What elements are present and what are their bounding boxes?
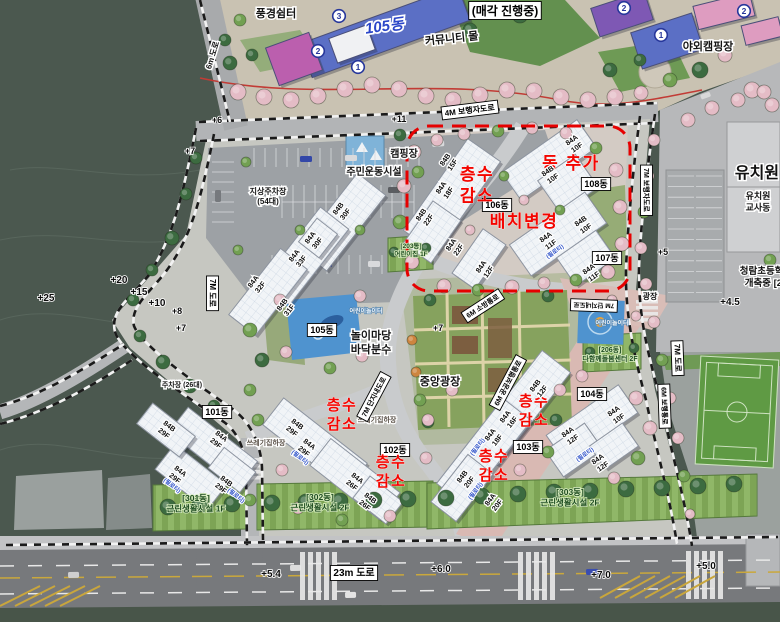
elev-8: +8: [172, 306, 182, 316]
circled-1b: 1: [655, 29, 668, 42]
elev-5: +5: [658, 247, 668, 257]
dong-105-label: 105동: [307, 324, 336, 337]
elev-10: +10: [149, 298, 166, 309]
svg-text:101동: 101동: [205, 407, 228, 417]
svg-text:쓰레기집하장: 쓰레기집하장: [247, 438, 286, 447]
svg-text:청람초등학교개축중 [25: 청람초등학교개축중 [25: [740, 265, 780, 289]
svg-text:+8: +8: [172, 306, 182, 316]
svg-text:야외캠핑장: 야외캠핑장: [683, 39, 734, 53]
svg-text:층수감소: 층수감소: [376, 454, 407, 490]
dong-101-label: 101동: [202, 406, 231, 419]
road-7m-ped-right-label: 7M 보행자도로: [641, 165, 653, 215]
svg-text:7M 도로: 7M 도로: [673, 344, 683, 373]
svg-text:23m 도로: 23m 도로: [333, 567, 374, 579]
svg-text:2: 2: [742, 6, 747, 16]
svg-text:어린이놀이터: 어린이놀이터: [349, 307, 382, 315]
svg-text:주민운동시설: 주민운동시설: [346, 165, 401, 178]
elev-15: +15: [131, 287, 148, 298]
svg-text:+15: +15: [131, 287, 148, 298]
elev-4p5: +4.5: [720, 297, 740, 308]
camping-label: 캠핑장: [390, 147, 418, 160]
note-floor-decrease-4: 층수감소: [519, 393, 550, 429]
svg-text:105동: 105동: [310, 325, 333, 335]
svg-text:104동: 104동: [580, 389, 603, 399]
svg-text:광장: 광장: [643, 291, 658, 301]
circled-2a: 2: [312, 45, 325, 58]
dong-103-label: 103동: [513, 441, 542, 454]
school-label: 청람초등학교개축중 [25: [740, 265, 780, 289]
svg-text:+4.5: +4.5: [720, 297, 740, 308]
kindergarten-label: 유치원: [735, 164, 779, 182]
road-6m-walk-label: 6M 보행통로: [658, 384, 672, 428]
svg-text:어린이놀이터: 어린이놀이터: [595, 319, 628, 327]
svg-text:+11: +11: [392, 114, 407, 124]
svg-text:103동: 103동: [516, 442, 539, 452]
kids-playground-label-1: 어린이놀이터: [349, 307, 382, 315]
road-7m-inner-label-2: 7M 단지내도로: [570, 299, 617, 313]
svg-text:층수감소: 층수감소: [327, 397, 358, 433]
punggyeong-shelter-label: 풍경쉼터: [256, 6, 296, 20]
svg-text:108동: 108동: [584, 179, 607, 189]
waste-station-label-2: 쓰레기집하장: [247, 438, 286, 447]
svg-text:+10: +10: [149, 298, 166, 309]
site-plan: 105동(매각 진행중)풍경쉼터커뮤니티 몰야외캠핑장캠핑장주민운동시설지상주차…: [0, 0, 780, 622]
car: [215, 190, 221, 202]
elev-6p0: +6.0: [431, 564, 451, 575]
svg-text:2: 2: [622, 3, 627, 13]
outdoor-camping-label: 야외캠핑장: [683, 39, 734, 53]
elev-7p0: +7.0: [591, 570, 611, 581]
note-floor-decrease-3: 층수감소: [376, 454, 407, 490]
svg-text:+5.0: +5.0: [696, 561, 716, 572]
note-layout-change: 배치변경: [490, 212, 559, 231]
elev-7a: +7: [185, 146, 195, 156]
svg-text:중앙광장: 중앙광장: [420, 374, 460, 388]
elev-20: +20: [111, 275, 128, 286]
svg-text:유치원: 유치원: [735, 164, 779, 182]
circled-2c: 2: [738, 5, 751, 18]
soccer-field: [695, 356, 779, 468]
circled-3: 3: [333, 10, 346, 23]
svg-text:+7: +7: [185, 146, 195, 156]
svg-text:2: 2: [316, 46, 321, 56]
svg-text:풍경쉼터: 풍경쉼터: [256, 6, 296, 20]
road-23m: [0, 544, 780, 610]
svg-text:주차장 (26대): 주차장 (26대): [162, 380, 202, 389]
svg-text:층수감소: 층수감소: [519, 393, 550, 429]
svg-text:+7: +7: [176, 323, 186, 333]
car: [345, 592, 356, 598]
road-23m-label: 23m 도로: [330, 566, 377, 581]
dong-107-label: 107동: [592, 252, 621, 265]
road-7m-left-label: 7M 도로: [207, 276, 219, 311]
svg-text:+20: +20: [111, 275, 128, 286]
car: [68, 572, 79, 578]
elev-5p0: +5.0: [696, 561, 716, 572]
svg-text:+5: +5: [658, 247, 668, 257]
elev-5p4: +5.4: [261, 569, 281, 580]
kids-playground-label-2: 어린이놀이터: [595, 319, 628, 327]
sale-status-label: (매각 진행중): [469, 2, 542, 20]
elev-6: +6: [212, 115, 222, 125]
svg-text:+7.0: +7.0: [591, 570, 611, 581]
elev-7b: +7: [176, 323, 186, 333]
svg-text:+25: +25: [38, 293, 55, 304]
note-floor-decrease-2: 층수감소: [327, 397, 358, 433]
road-7m-right-label: 7M 도로: [671, 341, 684, 376]
svg-text:배치변경: 배치변경: [490, 212, 559, 231]
elev-25: +25: [38, 293, 55, 304]
svg-text:+6: +6: [212, 115, 222, 125]
car: [300, 156, 312, 162]
car: [290, 565, 301, 571]
svg-text:(매각 진행중): (매각 진행중): [472, 3, 539, 18]
car: [345, 155, 357, 161]
central-plaza-label: 중앙광장: [420, 374, 460, 388]
plaza-label: 광장: [643, 291, 658, 301]
svg-text:놀이마당바닥분수: 놀이마당바닥분수: [351, 328, 391, 356]
site-plan-map: 105동(매각 진행중)풍경쉼터커뮤니티 몰야외캠핑장캠핑장주민운동시설지상주차…: [0, 0, 780, 622]
play-yard-label: 놀이마당바닥분수: [351, 328, 391, 356]
car: [368, 261, 380, 267]
dong-108-label: 108동: [581, 178, 610, 191]
svg-text:+7: +7: [433, 323, 443, 333]
svg-text:7M 보행자도로: 7M 보행자도로: [642, 168, 651, 212]
elev-7c: +7: [433, 323, 443, 333]
svg-text:층수감소: 층수감소: [479, 448, 510, 484]
parking-26-label: 주차장 (26대): [162, 380, 202, 389]
dong-104-label: 104동: [577, 388, 606, 401]
svg-text:3: 3: [337, 11, 342, 21]
svg-text:1: 1: [659, 30, 664, 40]
sports-facility-label: 주민운동시설: [346, 165, 401, 178]
svg-text:107동: 107동: [595, 253, 618, 263]
svg-text:7M 도로: 7M 도로: [208, 279, 217, 308]
svg-text:1: 1: [356, 62, 361, 72]
svg-text:캠핑장: 캠핑장: [390, 147, 418, 160]
elev-11: +11: [392, 114, 407, 124]
note-floor-decrease-5: 층수감소: [479, 448, 510, 484]
circled-2b: 2: [618, 2, 631, 15]
circled-1a: 1: [352, 61, 365, 74]
svg-text:+5.4: +5.4: [261, 569, 281, 580]
svg-text:+6.0: +6.0: [431, 564, 451, 575]
